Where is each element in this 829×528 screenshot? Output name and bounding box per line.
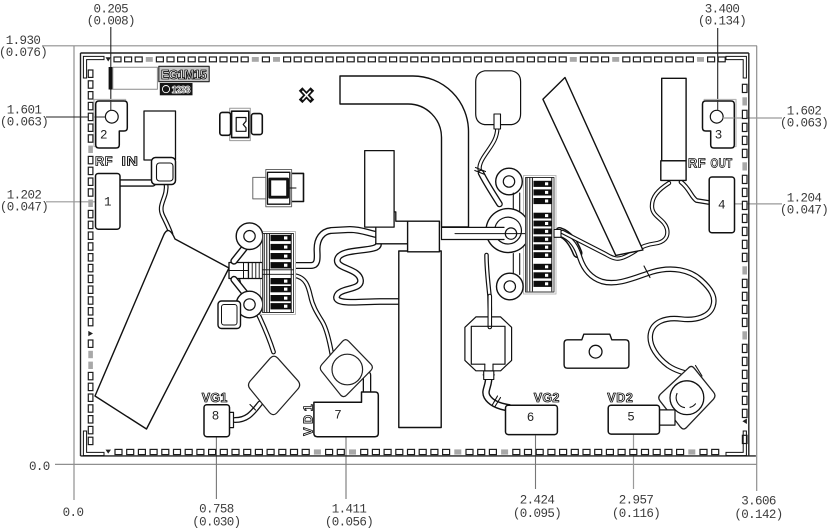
svg-text:(0.047): (0.047) bbox=[780, 204, 828, 218]
svg-text:1233: 1233 bbox=[172, 85, 191, 96]
svg-text:0.0: 0.0 bbox=[63, 506, 84, 520]
svg-text:3: 3 bbox=[715, 129, 723, 143]
svg-text:(0.095): (0.095) bbox=[513, 507, 561, 521]
svg-text:8: 8 bbox=[212, 410, 220, 424]
svg-text:1: 1 bbox=[104, 196, 112, 210]
svg-text:4: 4 bbox=[718, 199, 726, 213]
svg-text:EG1M15: EG1M15 bbox=[161, 68, 207, 82]
svg-text:3.606: 3.606 bbox=[741, 495, 776, 509]
svg-text:7: 7 bbox=[334, 409, 342, 423]
svg-text:1.411: 1.411 bbox=[332, 503, 367, 517]
svg-text:5: 5 bbox=[627, 411, 635, 425]
svg-text:VG2: VG2 bbox=[534, 391, 560, 405]
svg-text:(0.063): (0.063) bbox=[0, 116, 48, 130]
svg-text:RF: RF bbox=[688, 156, 706, 171]
svg-text:2: 2 bbox=[100, 129, 108, 143]
svg-text:0.0: 0.0 bbox=[29, 460, 50, 474]
svg-text:(0.134): (0.134) bbox=[698, 15, 746, 29]
svg-text:IN: IN bbox=[122, 154, 139, 169]
svg-text:(0.047): (0.047) bbox=[0, 201, 48, 215]
svg-text:(0.076): (0.076) bbox=[0, 46, 47, 60]
svg-text:2.424: 2.424 bbox=[520, 494, 555, 508]
svg-text:(0.063): (0.063) bbox=[780, 117, 828, 131]
svg-text:VD1: VD1 bbox=[302, 404, 316, 436]
svg-text:RF: RF bbox=[95, 154, 113, 169]
svg-text:(0.008): (0.008) bbox=[87, 15, 135, 29]
svg-text:OUT: OUT bbox=[711, 156, 733, 171]
svg-text:VD2: VD2 bbox=[607, 391, 633, 405]
svg-text:(0.056): (0.056) bbox=[325, 516, 373, 528]
svg-text:(0.030): (0.030) bbox=[192, 516, 240, 528]
svg-text:6: 6 bbox=[527, 411, 535, 425]
svg-text:0.758: 0.758 bbox=[199, 503, 234, 517]
svg-text:VG1: VG1 bbox=[202, 391, 228, 405]
svg-text:(0.116): (0.116) bbox=[612, 507, 660, 521]
svg-text:(0.142): (0.142) bbox=[734, 508, 782, 522]
svg-text:2.957: 2.957 bbox=[619, 494, 654, 508]
